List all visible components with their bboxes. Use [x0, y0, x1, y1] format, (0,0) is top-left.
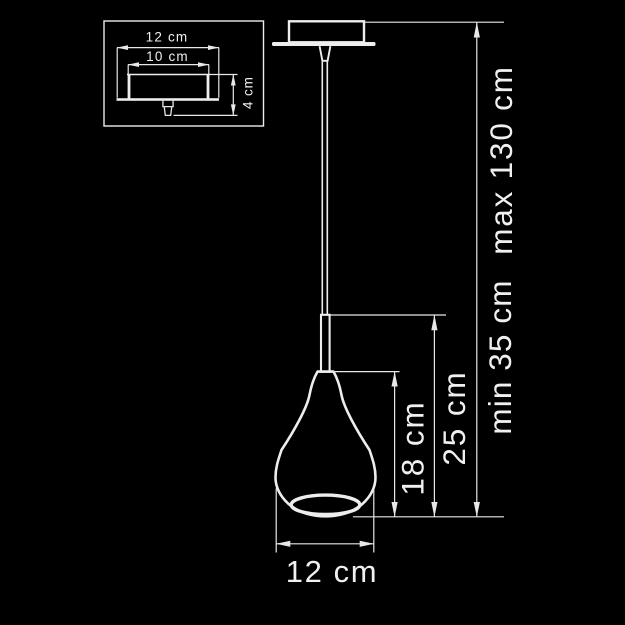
svg-text:12 cm: 12 cm	[146, 30, 189, 45]
svg-text:18 cm: 18 cm	[395, 400, 431, 495]
svg-text:10 cm: 10 cm	[146, 49, 189, 64]
svg-text:max 130 cm: max 130 cm	[483, 65, 519, 255]
svg-text:4 cm: 4 cm	[240, 76, 255, 109]
svg-text:12 cm: 12 cm	[286, 554, 378, 589]
svg-text:25 cm: 25 cm	[436, 370, 472, 465]
svg-text:min 35 cm: min 35 cm	[482, 279, 518, 434]
